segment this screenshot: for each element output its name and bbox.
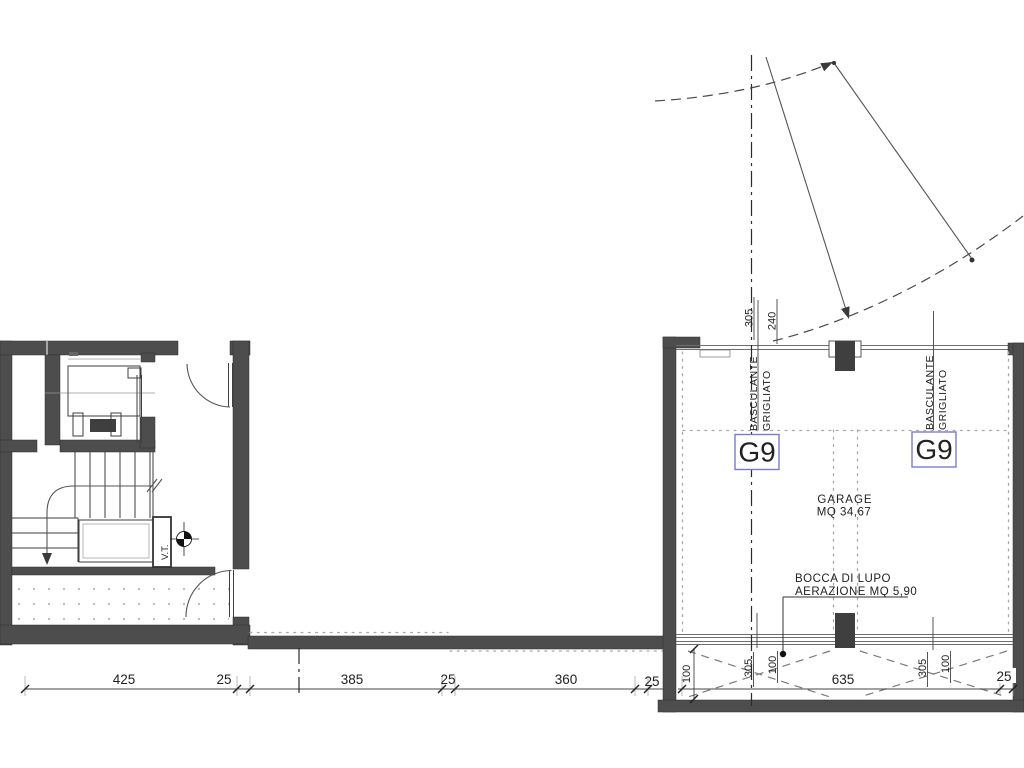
unit-label-g9-right: G9 [912, 432, 956, 467]
basculante-label-left: BASCULANTE GRIGLIATO [748, 356, 773, 431]
technical-shaft: V.T. [153, 517, 171, 567]
garage-name: GARAGE [817, 494, 872, 506]
basculante-text-1a: BASCULANTE [748, 356, 760, 431]
dim-top-240: 240 [767, 312, 779, 330]
stair-core: V.T. [0, 341, 250, 645]
dim-lw-left-305: 305 [743, 659, 755, 677]
vent-line1: BOCCA DI LUPO [795, 573, 891, 585]
basculante-text-2b: GRIGLIATO [937, 369, 949, 430]
garage-area: MQ 34,67 [817, 507, 872, 519]
bottom-pier [835, 613, 855, 648]
floor-plan-page: V.T. [0, 0, 1024, 768]
basculante-label-right: BASCULANTE GRIGLIATO [924, 355, 949, 430]
basculante-text-2a: BASCULANTE [924, 355, 936, 430]
staircase [12, 452, 162, 565]
dim-25-a: 25 [216, 672, 231, 687]
top-pier [835, 341, 855, 371]
connecting-wall [248, 633, 666, 652]
vent-line2: AERAZIONE MQ 5,90 [795, 586, 917, 598]
dim-385: 385 [341, 672, 364, 687]
dim-lw-right-305: 305 [917, 659, 929, 677]
dim-25-d: 25 [996, 669, 1011, 684]
dim-lw-right-100: 100 [940, 655, 952, 673]
dim-25-b: 25 [440, 672, 455, 687]
g9-text-right: G9 [915, 434, 952, 465]
door-top [187, 363, 233, 407]
dim-360: 360 [555, 672, 578, 687]
dim-top-305: 305 [744, 309, 756, 327]
ramp-dotted-area [14, 576, 229, 623]
dim-25-c: 25 [644, 674, 659, 689]
dim-425: 425 [113, 672, 136, 687]
garage: G9 G9 BASCULANTE GRIGLIATO BASCULANTE GR… [655, 55, 1024, 712]
dim-lightwell-height: 100 [681, 665, 693, 683]
tech-shaft-label: V.T. [160, 545, 171, 561]
garage-room-label: GARAGE MQ 34,67 [817, 494, 873, 519]
basculante-text-1b: GRIGLIATO [761, 370, 773, 431]
dim-lw-left-100: 100 [767, 656, 779, 674]
gate-swing-arcs [655, 57, 1023, 341]
dim-635: 635 [832, 672, 855, 687]
leader-dot [780, 651, 786, 657]
floor-plan-svg: V.T. [0, 0, 1024, 768]
elevator-shaft [45, 352, 155, 443]
benchmark-symbol [170, 522, 199, 556]
g9-text-left: G9 [738, 437, 775, 468]
unit-label-g9-left: G9 [735, 435, 779, 470]
walk-line-arrow [42, 553, 52, 565]
